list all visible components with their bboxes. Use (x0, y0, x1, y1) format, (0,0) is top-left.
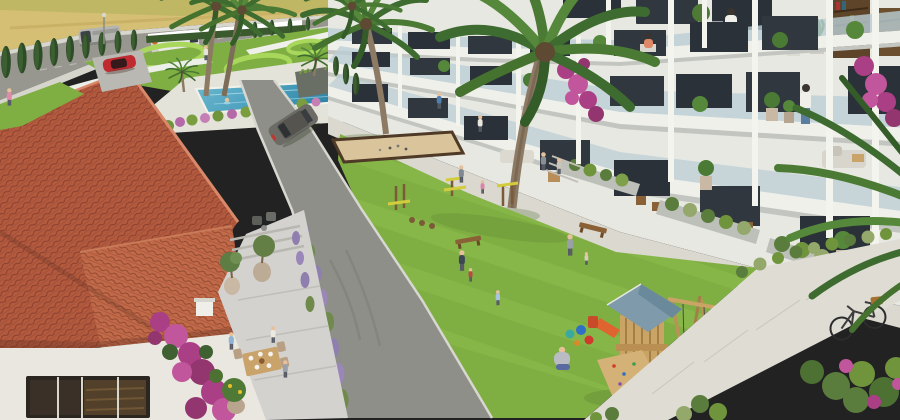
clubhouse-window (26, 376, 150, 418)
chimney (194, 298, 215, 316)
render-image (0, 0, 900, 420)
